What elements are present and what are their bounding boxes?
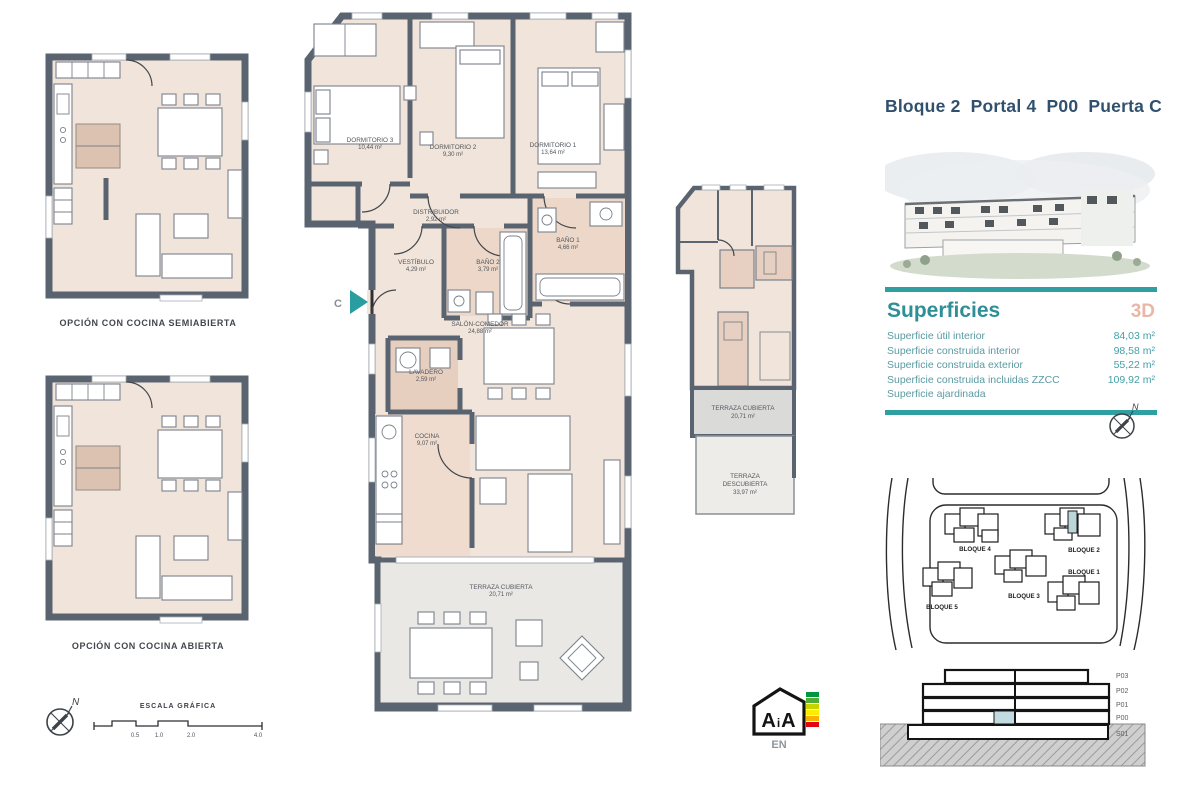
- superficies-row-label: Superficie construida incluidas ZZCC: [887, 373, 1060, 388]
- site-label-bloque-3: BLOQUE 3: [1008, 593, 1040, 600]
- site-bloque-4: [945, 508, 998, 542]
- superficies-row: Superficie construida incluidas ZZCC 109…: [887, 373, 1155, 388]
- overview-terraza-descubierta-label2: DESCUBIERTA: [723, 481, 769, 488]
- site-bloque-3: [995, 550, 1046, 582]
- compass-north-label: N: [1132, 402, 1139, 412]
- overview-terraza-cubierta: [692, 388, 794, 436]
- superficies-row-label: Superficie útil interior: [887, 329, 985, 344]
- elevation-label-p03: P03: [1116, 673, 1129, 680]
- room-label-cocina: COCINA: [415, 433, 441, 440]
- option-caption-semiabierta: OPCIÓN CON COCINA SEMIABIERTA: [28, 318, 268, 328]
- level-P03: [945, 670, 1088, 683]
- site-bloque-2: [1045, 508, 1100, 540]
- room-label-bano-1: BAÑO 1: [556, 235, 580, 244]
- level-S01: [908, 725, 1108, 739]
- compass-icon-small: N: [1098, 398, 1148, 448]
- entrance-arrow-icon: [350, 290, 368, 314]
- overview-mini-plan: TERRAZA CUBIERTA 20,71 m² TERRAZA DESCUB…: [672, 182, 800, 517]
- scale-bar: ESCALA GRÁFICA 0.5 1.0 2.0 4.0: [88, 694, 268, 744]
- site-label-bloque-5: BLOQUE 5: [926, 604, 958, 611]
- option-caption-abierta: OPCIÓN CON COCINA ABIERTA: [28, 641, 268, 651]
- main-floor-plan: C: [298, 8, 634, 714]
- room-area-dormitorio-3: 10,44 m²: [358, 145, 382, 151]
- superficies-row-value: 55,22 m²: [1114, 358, 1155, 373]
- room-label-dormitorio-2: DORMITORIO 2: [430, 144, 477, 151]
- room-area-cocina: 9,07 m²: [417, 441, 437, 447]
- room-area-distribuidor: 2,92 m²: [426, 217, 446, 223]
- option-plan-semiabierta: [42, 50, 252, 302]
- entrance-letter: C: [334, 298, 342, 310]
- compass-icon: N: [36, 692, 86, 744]
- panel-top-rule: [885, 287, 1157, 292]
- superficies-row-label: Superficie ajardinada: [887, 387, 986, 402]
- room-area-lavadero: 2,59 m²: [416, 377, 436, 383]
- elevation-label-p02: P02: [1116, 688, 1129, 695]
- site-bloque-1: [1048, 576, 1099, 610]
- superficies-heading: Superficies: [887, 299, 1000, 323]
- scale-tick: 0.5: [131, 733, 140, 739]
- room-label-distribuidor: DISTRIBUIDOR: [413, 209, 459, 216]
- superficies-row-label: Superficie construida interior: [887, 344, 1020, 359]
- scale-tick: 4.0: [254, 733, 263, 739]
- room-area-dormitorio-1: 13,64 m²: [541, 150, 565, 156]
- overview-terraza-cubierta-label: TERRAZA CUBIERTA: [712, 405, 776, 412]
- room-area-dormitorio-2: 9,30 m²: [443, 152, 463, 158]
- room-area-bano-2: 3,79 m²: [478, 267, 498, 273]
- superficies-row-value: 109,92 m²: [1108, 373, 1155, 388]
- energy-certificate-icon: AiA EN: [750, 684, 822, 752]
- superficies-panel: Superficies 3D Superficie útil interior …: [885, 287, 1157, 415]
- highlighted-floor-unit: [994, 711, 1015, 724]
- elevation-label-p00: P00: [1116, 715, 1129, 722]
- badge-3d: 3D: [1131, 301, 1155, 323]
- site-plan: BLOQUE 4 BLOQUE 2 BLOQUE 5 BLOQUE 3 BLOQ…: [878, 478, 1168, 650]
- energy-label: EN: [771, 739, 786, 751]
- overview-terraza-descubierta-label1: TERRAZA: [730, 473, 761, 480]
- room-area-terraza-cubierta: 20,71 m²: [489, 592, 513, 598]
- superficies-row: Superficie útil interior 84,03 m²: [887, 329, 1155, 344]
- overview-terraza-cubierta-area: 20,71 m²: [731, 414, 755, 420]
- option-plan-abierta: [42, 372, 252, 624]
- superficies-row: Superficie construida exterior 55,22 m²: [887, 358, 1155, 373]
- plan-sheet: OPCIÓN CON COCINA SEMIABIERTA OPCIÓN CON…: [0, 0, 1200, 800]
- scale-bar-title: ESCALA GRÁFICA: [140, 701, 216, 710]
- room-label-dormitorio-1: DORMITORIO 1: [530, 142, 577, 149]
- room-label-terraza-cubierta: TERRAZA CUBIERTA: [470, 584, 534, 591]
- room-label-dormitorio-3: DORMITORIO 3: [347, 137, 394, 144]
- superficies-row-label: Superficie construida exterior: [887, 358, 1023, 373]
- site-label-bloque-4: BLOQUE 4: [959, 546, 991, 553]
- room-label-vestibulo: VESTÍBULO: [398, 257, 434, 266]
- sliding-glass-wall: [396, 557, 594, 563]
- compass-north-label: N: [72, 697, 80, 708]
- scale-tick: 2.0: [187, 733, 196, 739]
- superficies-row: Superficie construida interior 98,58 m²: [887, 344, 1155, 359]
- superficies-row-value: 84,03 m²: [1114, 329, 1155, 344]
- elevation-label-s01: S01: [1116, 731, 1129, 738]
- room-area-bano-1: 4,66 m²: [558, 245, 578, 251]
- overview-terraza-descubierta-area: 33,97 m²: [733, 490, 757, 496]
- site-label-bloque-1: BLOQUE 1: [1068, 569, 1100, 576]
- elevation-diagram: P03 P02 P01 P00 S01: [880, 650, 1160, 768]
- room-area-salon: 24,88 m²: [468, 329, 492, 335]
- page-title: Bloque 2 Portal 4 P00 Puerta C: [885, 96, 1162, 117]
- building-rendering: [885, 146, 1161, 286]
- room-area-vestibulo: 4,29 m²: [406, 267, 426, 273]
- room-label-bano-2: BAÑO 2: [476, 257, 500, 266]
- scale-tick: 1.0: [155, 733, 164, 739]
- site-label-bloque-2: BLOQUE 2: [1068, 547, 1100, 554]
- room-label-lavadero: LAVADERO: [409, 369, 443, 376]
- superficies-row-value: 98,58 m²: [1114, 344, 1155, 359]
- elevation-label-p01: P01: [1116, 702, 1129, 709]
- highlighted-unit: [1068, 511, 1077, 533]
- room-label-salon: SALÓN-COMEDOR: [451, 319, 509, 328]
